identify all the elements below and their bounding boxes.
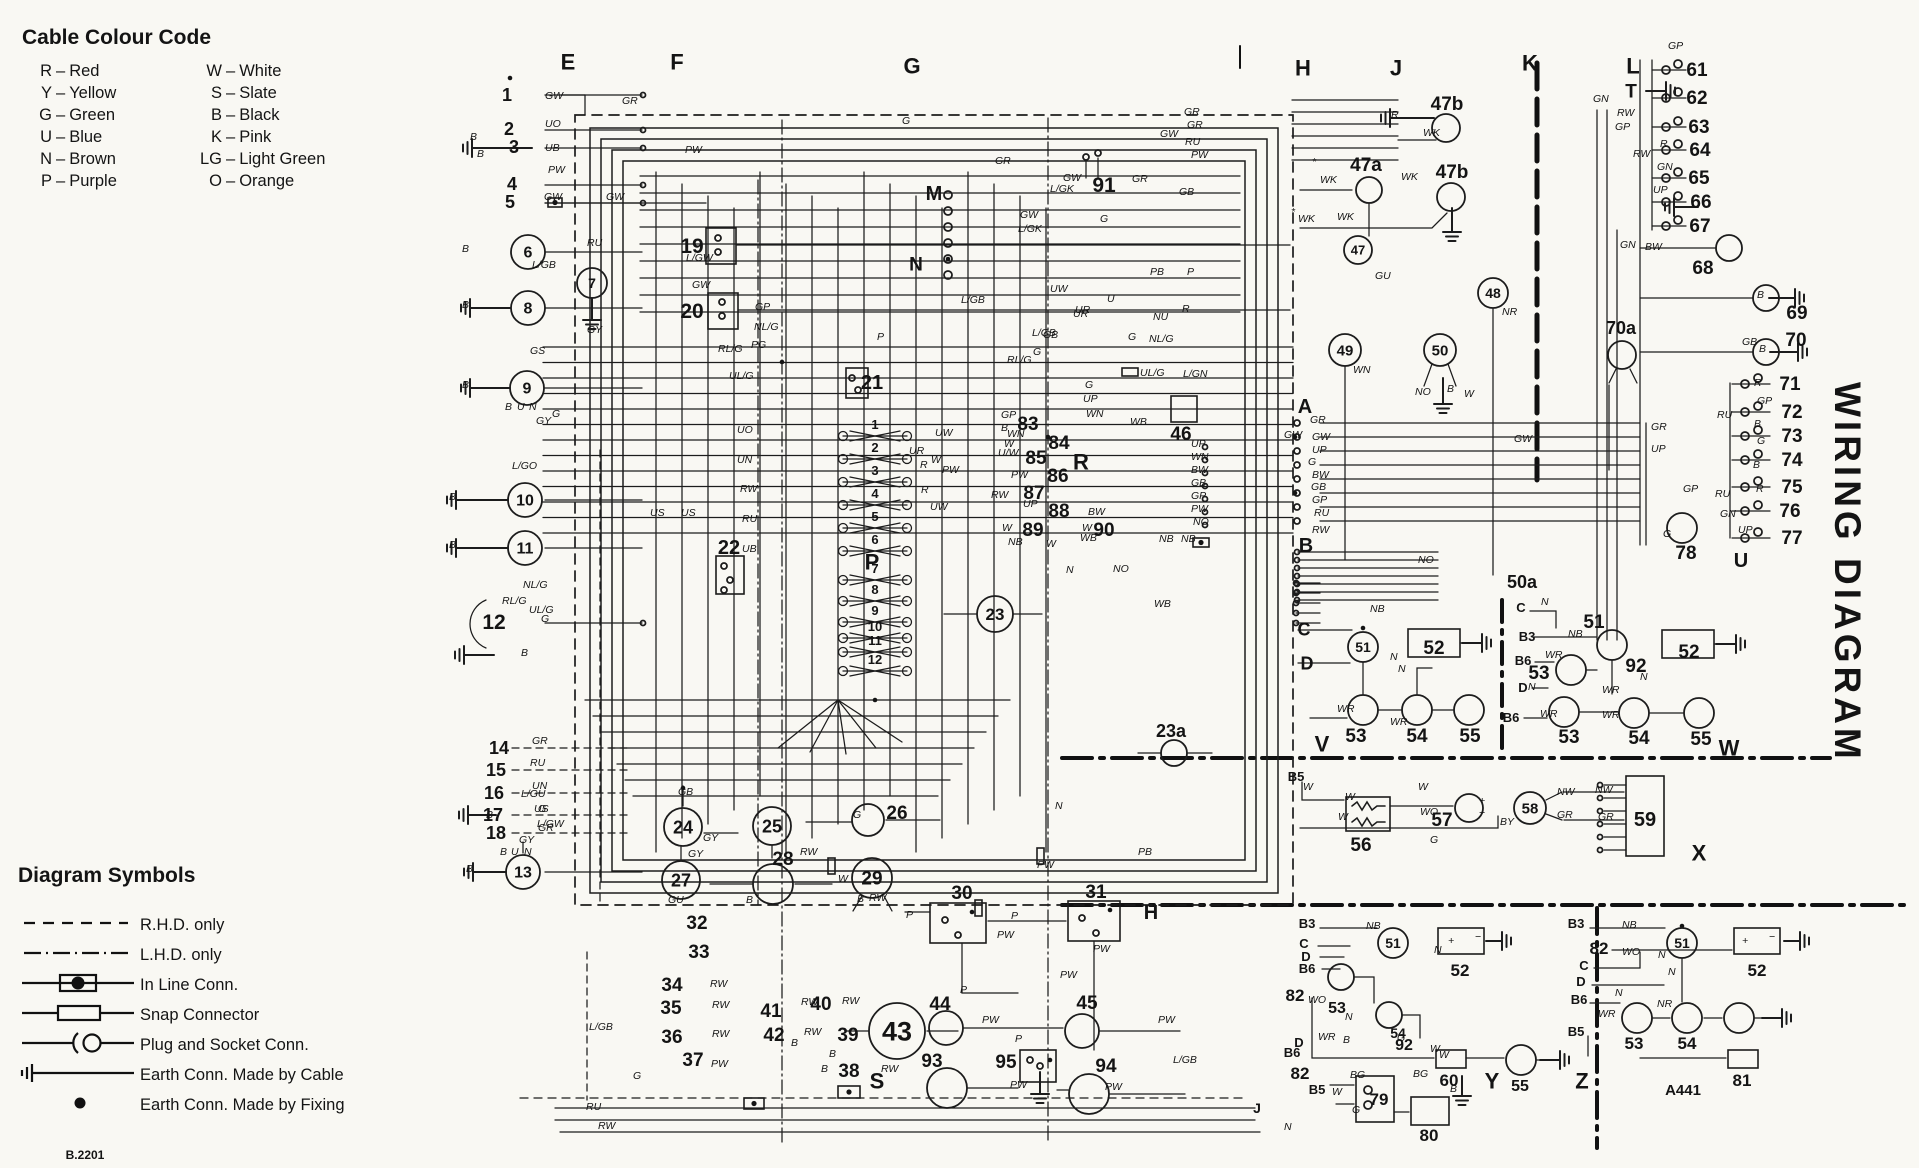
wire-colour-label: GP	[1312, 494, 1327, 506]
wire-colour-label: G	[1397, 1032, 1405, 1044]
wire-colour-label: RU	[587, 237, 603, 249]
wire-colour-label: RL/G	[1007, 354, 1032, 366]
section-letter: D	[1301, 653, 1314, 673]
wire-colour-label: B	[1343, 1034, 1350, 1046]
page-title: WIRING DIAGRAM	[1826, 382, 1868, 763]
terminal-callout: B6	[1284, 1045, 1301, 1060]
snap-symbol-icon	[18, 1001, 140, 1025]
wire-colour-label: R	[1391, 109, 1399, 121]
terminal-callout: D	[1576, 974, 1585, 989]
wire-colour-label: B	[466, 863, 473, 875]
wire-colour-label: UP	[1653, 184, 1668, 196]
colour-code-entry: N–Brown	[22, 150, 192, 169]
diagram-symbol-row: L.H.D. only	[18, 944, 345, 966]
component-number: 59	[1634, 809, 1656, 831]
component-number: 66	[1690, 192, 1711, 213]
component-number: 52	[1748, 961, 1767, 980]
wire-colour-label: G	[1308, 456, 1316, 468]
switch-row-number: 10	[868, 619, 882, 634]
wire-colour-label: NW	[1595, 784, 1614, 796]
switch-row-number: 9	[871, 603, 878, 618]
wire-colour-label: BG	[1413, 1068, 1428, 1080]
switch-row-number: 6	[871, 532, 878, 547]
section-dividers	[1062, 46, 1908, 1148]
wire-colour-label: NB	[1370, 603, 1385, 615]
wire-colour-label: NB	[1622, 919, 1637, 931]
component-number: 14	[489, 738, 509, 758]
wire-colour-label: US	[681, 507, 696, 519]
wire-colour-label: GR	[1557, 809, 1573, 821]
section-letter: W	[1719, 736, 1740, 761]
wire-colour-label: B	[746, 894, 753, 906]
component-number: 54	[1628, 728, 1650, 749]
component-number: 71	[1779, 374, 1801, 395]
component-number: 73	[1781, 426, 1802, 447]
component-number: 94	[1095, 1056, 1117, 1077]
wire-colour-label: NR	[1657, 998, 1673, 1010]
wire-colour-label: G	[1663, 528, 1671, 540]
wire-colour-label: L/GB	[961, 294, 985, 306]
wire-colour-label: N	[1345, 1011, 1353, 1023]
wire-colour-label: GW	[692, 279, 711, 291]
wire-colour-label: PW	[1191, 503, 1209, 515]
wire-colour-label: GR	[995, 155, 1011, 167]
wire-colour-label: UN	[737, 454, 753, 466]
switch-row-number: 3	[871, 463, 878, 478]
wire-colour-label: GU	[668, 894, 684, 906]
wire-colour-label: GU	[1375, 270, 1391, 282]
wire-colour-label: RW	[710, 978, 728, 990]
wire-colour-label: WR	[1602, 709, 1620, 721]
wire-colour-label: B	[521, 647, 528, 659]
wire-colour-label: RW	[1633, 148, 1651, 160]
wire-colour-label: GN	[1720, 508, 1736, 520]
component-number: 67	[1689, 216, 1710, 237]
component-number: 36	[661, 1027, 682, 1048]
cable-colour-code-legend: Cable Colour Code R–RedW–WhiteY–YellowS–…	[22, 26, 362, 191]
component-number: 10	[516, 493, 534, 510]
wire-colour-label: PW	[1093, 943, 1111, 955]
diagram-symbols-heading: Diagram Symbols	[18, 864, 345, 888]
wire-colour-label: L/GN	[1183, 368, 1208, 380]
earth-cable-symbol-icon	[18, 1061, 140, 1085]
component-number: 75	[1781, 477, 1803, 498]
colour-code-entry: P–Purple	[22, 172, 192, 191]
wire-colour-label: WB	[1154, 598, 1171, 610]
wire-colour-label: G	[1033, 346, 1041, 358]
wire-colour-label: W	[1418, 781, 1429, 793]
wire-colour-label: RU	[1715, 488, 1731, 500]
wire-colour-label: PW	[1011, 469, 1029, 481]
section-letter: T	[1625, 82, 1637, 103]
colour-code-entry: G–Green	[22, 106, 192, 125]
wire-colour-label: GY	[688, 848, 704, 860]
wire-colour-label: RU	[530, 757, 546, 769]
wire-colour-label: GW	[544, 191, 563, 203]
component-number: 55	[1690, 729, 1712, 750]
component-number: 49	[1337, 342, 1354, 359]
switch-row-number: 7	[871, 561, 878, 576]
wire-colour-label: GY	[536, 415, 552, 427]
wiring-diagram-page: Cable Colour Code R–RedW–WhiteY–YellowS–…	[0, 0, 1919, 1168]
wire-colour-label: BY	[1500, 816, 1515, 828]
wire-colour-label: B	[486, 809, 493, 821]
component-number: 4	[507, 174, 517, 194]
wire-colour-label: RU	[1314, 507, 1330, 519]
component-number: 16	[484, 783, 504, 803]
wire-colour-label: GW	[606, 191, 625, 203]
wire-colour-label: W	[838, 873, 849, 885]
wire-colour-label: RW	[869, 892, 887, 904]
wire-colour-label: −	[1769, 931, 1775, 943]
section-letter: H	[1295, 56, 1311, 81]
wire-colour-label: GB	[1179, 186, 1194, 198]
wire-colour-label: N	[1658, 949, 1666, 961]
wire-colour-label: GY	[519, 834, 535, 846]
wire-colour-label: UL/G	[729, 370, 754, 382]
wire-colour-label: RU	[1717, 409, 1733, 421]
section-letter: C	[1298, 619, 1311, 639]
component-number: 84	[1048, 433, 1070, 454]
wire-colour-label: R	[920, 459, 928, 471]
wire-colour-label: PG	[751, 339, 766, 351]
wire-colour-label: U/W	[998, 447, 1020, 459]
colour-code-row: Y–YellowS–Slate	[22, 84, 362, 103]
section-letter: J	[1253, 1100, 1261, 1116]
colour-code-row: G–GreenB–Black	[22, 106, 362, 125]
wire-colour-label: RU	[1185, 136, 1201, 148]
wire-colour-label: BW	[1645, 241, 1663, 253]
component-number: 62	[1686, 88, 1707, 109]
wire-colour-label: B	[449, 491, 456, 503]
component-number: 23a	[1156, 721, 1187, 741]
wire-colour-label: +	[1742, 935, 1748, 947]
wire-colour-label: G	[552, 408, 560, 420]
component-number: 44	[929, 994, 951, 1015]
colour-code-entry: S–Slate	[192, 84, 362, 103]
wire-colour-label: B	[1757, 289, 1764, 301]
section-letter: R	[1073, 450, 1089, 475]
wire-colour-label: UW	[930, 501, 949, 513]
wire-colour-label: BW	[1088, 506, 1106, 518]
component-number: 37	[682, 1050, 703, 1071]
wire-colour-label: N	[1528, 681, 1536, 693]
wire-colour-label: WK	[1423, 127, 1441, 139]
switch-row-number: 4	[871, 486, 879, 501]
colour-code-row: U–BlueK–Pink	[22, 128, 362, 147]
wire-colour-label: G	[902, 115, 910, 127]
component-number: 82	[1590, 939, 1609, 958]
wire-colour-label: WK	[1401, 171, 1419, 183]
component-number: 5	[505, 192, 515, 212]
wire-colour-label: WR	[1598, 1008, 1616, 1020]
component-number: 12	[482, 611, 505, 634]
plug-symbol-icon	[18, 1031, 140, 1055]
wire-colour-label: PW	[711, 1058, 729, 1070]
component-number: 55	[1511, 1078, 1529, 1095]
wire-colour-label: WR	[1337, 703, 1355, 715]
wire-colour-label: RW	[881, 1063, 899, 1075]
colour-code-entry: W–White	[192, 62, 362, 81]
wire-colour-label: RU	[742, 513, 758, 525]
wire-colour-label: GN	[1620, 239, 1636, 251]
component-number: 91	[1092, 174, 1116, 197]
section-letter: G	[903, 54, 920, 79]
wire-colour-label: L/GW	[686, 252, 714, 264]
wire-colour-label: G	[541, 613, 549, 625]
component-number: 35	[660, 998, 682, 1019]
component-number: 32	[686, 913, 707, 934]
wire-colour-label: PW	[1010, 1079, 1028, 1091]
diagram-symbol-entries: R.H.D. onlyL.H.D. onlyIn Line Conn.Snap …	[18, 914, 345, 1116]
wire-colour-label: GR	[1651, 421, 1667, 433]
switch-row-number: 2	[871, 440, 878, 455]
component-number: 54	[1678, 1034, 1697, 1053]
colour-code-row: P–PurpleO–Orange	[22, 172, 362, 191]
wire-colour-label: GR	[1598, 811, 1614, 823]
wire-colour-label: B	[1450, 1083, 1457, 1095]
colour-code-entry: R–Red	[22, 62, 192, 81]
wire-colour-label: N	[1640, 671, 1648, 683]
diagram-symbol-label: Earth Conn. Made by Fixing	[140, 1096, 345, 1115]
wire-colour-label: N	[529, 401, 537, 413]
wire-colour-label: UP	[1312, 444, 1327, 456]
component-number: 21	[861, 372, 883, 394]
wire-colour-label: PW	[942, 464, 960, 476]
wire-colour-label: B	[857, 893, 864, 905]
wire-colour-label: NO	[1418, 554, 1434, 566]
component-number: 33	[688, 942, 709, 963]
diagram-symbol-label: Plug and Socket Conn.	[140, 1036, 309, 1055]
wire-colour-label: W	[1464, 388, 1475, 400]
wire-colour-label: *	[1312, 156, 1317, 168]
wire-colour-label: B	[791, 1037, 798, 1049]
terminal-callout: A441	[1665, 1082, 1701, 1099]
wire-colour-label: NL/G	[523, 579, 548, 591]
wire-colour-label: U	[517, 401, 525, 413]
section-letter: N	[909, 255, 923, 276]
wire-colour-label: UW	[1050, 283, 1069, 295]
wire-colour-label: GR	[1187, 119, 1203, 131]
diagram-symbol-label: R.H.D. only	[140, 916, 224, 935]
wire-colour-label: RW	[712, 999, 730, 1011]
wire-colour-label: U	[1107, 293, 1115, 305]
component-number: 27	[671, 870, 691, 890]
section-letter: K	[1522, 51, 1538, 76]
component-number: 74	[1781, 450, 1803, 471]
component-number: 51	[1674, 935, 1690, 951]
wire-colour-label: B	[500, 846, 507, 858]
wire-colour-label: B	[1447, 383, 1454, 395]
wire-colour-label: UR	[909, 445, 925, 457]
component-number: 70a	[1606, 318, 1637, 338]
component-number: 31	[1085, 882, 1107, 903]
wire-colour-label: UP	[1023, 498, 1038, 510]
diagram-symbol-row: Earth Conn. Made by Fixing	[18, 1094, 345, 1116]
wire-colour-label: G	[853, 809, 861, 821]
wire-colour-label: GP	[755, 301, 770, 313]
component-number: 77	[1781, 528, 1802, 549]
component-number: 23	[986, 605, 1005, 624]
terminal-callout: B6	[1571, 992, 1588, 1007]
wire-colour-label: GW	[1312, 431, 1331, 443]
component-number: 58	[1522, 800, 1539, 817]
wire-colour-label: PW	[1060, 969, 1078, 981]
wire-colour-label: RW	[991, 489, 1009, 501]
diagram-symbol-row: R.H.D. only	[18, 914, 345, 936]
switch-row-number: 1	[871, 417, 878, 432]
wire-colour-label: WN	[1353, 364, 1371, 376]
wire-colour-label: B	[1753, 459, 1760, 471]
wire-colour-label: G	[538, 803, 546, 815]
component-number: 2	[504, 119, 514, 139]
component-number: 64	[1689, 140, 1711, 161]
wire-colour-label: P	[1015, 1033, 1022, 1045]
wire-colour-label: GS	[530, 345, 545, 357]
component-number: 82	[1286, 986, 1305, 1005]
wire-colour-label: G	[1085, 379, 1093, 391]
component-number: 26	[886, 803, 907, 824]
wire-colour-label: UL/G	[1140, 367, 1165, 379]
component-number: 51	[1355, 639, 1371, 655]
colour-code-entry: B–Black	[192, 106, 362, 125]
wire-colour-label: L/GB	[532, 259, 556, 271]
wire-colour-label: GP	[1668, 40, 1683, 52]
wire-colour-label: B	[505, 401, 512, 413]
wire-colour-label: *	[1291, 206, 1296, 218]
wire-colour-label: NO	[1193, 516, 1209, 528]
component-number: 54	[1406, 726, 1428, 747]
wire-colour-label: UB	[545, 142, 560, 154]
wire-colour-label: W	[1338, 811, 1349, 823]
wire-colour-label: WR	[1540, 708, 1558, 720]
wire-colour-label: B	[462, 243, 469, 255]
wire-colour-label: NW	[1557, 786, 1576, 798]
component-number: 86	[1047, 466, 1068, 487]
component-number: 48	[1485, 285, 1501, 301]
section-letter: Z	[1575, 1069, 1588, 1094]
section-letter: B	[1299, 535, 1313, 557]
wire-colour-label: NB	[1568, 628, 1583, 640]
wire-colour-label: RW	[1617, 107, 1635, 119]
wire-colour-label: P	[906, 909, 913, 921]
dashed-symbol-icon	[18, 911, 140, 935]
diagram-symbol-label: Earth Conn. Made by Cable	[140, 1066, 344, 1085]
wire-colour-label: PW	[1037, 859, 1055, 871]
wire-colour-label: WK	[1298, 213, 1316, 225]
wire-colour-label: WO	[1622, 946, 1640, 958]
component-number: 42	[763, 1025, 784, 1046]
wire-colour-label: RW	[712, 1028, 730, 1040]
component-number: 9	[523, 381, 532, 398]
component-number: 45	[1076, 993, 1098, 1014]
terminal-callout: C	[1579, 958, 1589, 973]
wire-colour-label: L/GB	[1173, 1054, 1197, 1066]
cable-colour-code-heading: Cable Colour Code	[22, 26, 362, 50]
wire-colour-label: L/GU	[521, 788, 546, 800]
wire-colour-label: R	[1660, 138, 1668, 150]
component-number: 51	[1583, 612, 1605, 633]
component-number: 3	[509, 137, 519, 157]
wire-colour-label: GP	[1615, 121, 1630, 133]
component-number: 63	[1688, 117, 1709, 138]
diagram-symbol-row: In Line Conn.	[18, 974, 345, 996]
wire-colour-label: PW	[997, 929, 1015, 941]
diagram-symbol-row: Snap Connector	[18, 1004, 345, 1026]
component-number: 53	[1328, 1000, 1346, 1017]
wire-colour-label: L/GK	[1018, 223, 1043, 235]
wire-colour-label: NB	[1366, 920, 1381, 932]
section-letter: E	[561, 50, 576, 75]
wire-colour-label: −	[1479, 807, 1485, 819]
wire-colour-label: BW	[1312, 469, 1330, 481]
wire-colour-label: WN	[1086, 408, 1104, 420]
component-number: 95	[995, 1052, 1017, 1073]
wire-colour-label: W	[931, 454, 942, 466]
switch-row	[839, 666, 912, 676]
component-number: 15	[486, 760, 506, 780]
terminal-callout: D	[1518, 680, 1527, 695]
wire-colour-label: GN	[1657, 161, 1673, 173]
wire-colour-label: L/GB	[589, 1021, 613, 1033]
diagram-symbol-row: Plug and Socket Conn.	[18, 1034, 345, 1056]
wire-colour-label: WO	[1308, 994, 1326, 1006]
wire-colour-label: GW	[1020, 209, 1039, 221]
wire-colour-label: GP	[1757, 395, 1772, 407]
wire-colour-label: N	[1668, 966, 1676, 978]
component-number: 29	[861, 869, 882, 890]
wire-colour-label: PW	[982, 1014, 1000, 1026]
component-number: 89	[1022, 520, 1043, 541]
component-number: 50a	[1507, 572, 1538, 592]
component-number: 34	[661, 975, 683, 996]
wire-colour-label: UO	[737, 424, 753, 436]
section-letter: H	[1144, 902, 1158, 924]
wire-colour-label: P	[1011, 910, 1018, 922]
component-number: 53	[1625, 1034, 1644, 1053]
colour-code-row: N–BrownLG–Light Green	[22, 150, 362, 169]
component-number: 69	[1786, 303, 1807, 324]
wire-colour-label: N	[1541, 596, 1549, 608]
wire-colour-label: GR	[1132, 173, 1148, 185]
component-number: 53	[1558, 727, 1579, 748]
component-number: 76	[1779, 501, 1800, 522]
wire-colour-label: UP	[1651, 443, 1666, 455]
wire-colour-label: UP	[1083, 393, 1098, 405]
wire-colour-label: U	[511, 846, 519, 858]
switch-row-number: 8	[871, 582, 878, 597]
component-number: 65	[1688, 168, 1710, 189]
component-number: 50	[1432, 342, 1449, 359]
wire-colour-label: NB	[1159, 533, 1174, 545]
wire-colour-label: PB	[1150, 266, 1164, 278]
wire-colour-label: G	[1430, 834, 1438, 846]
component-number: 38	[838, 1061, 859, 1082]
wire-colour-label: RW	[804, 1026, 822, 1038]
wire-colour-label: N	[1390, 651, 1398, 663]
section-letter: L	[1626, 54, 1639, 79]
wire-colour-label: G	[1128, 331, 1136, 343]
component-number: 68	[1692, 258, 1713, 279]
wire-colour-label: RW	[800, 846, 818, 858]
wire-colour-label: B	[1759, 343, 1766, 355]
component-number: 47	[1351, 243, 1365, 258]
wire-colour-label: NL/G	[1149, 333, 1174, 345]
wire-colour-label: GB	[1742, 336, 1757, 348]
wire-colour-label: WK	[1320, 174, 1338, 186]
wire-colour-label: UP	[1191, 438, 1206, 450]
wire-colour-label: PW	[548, 164, 566, 176]
